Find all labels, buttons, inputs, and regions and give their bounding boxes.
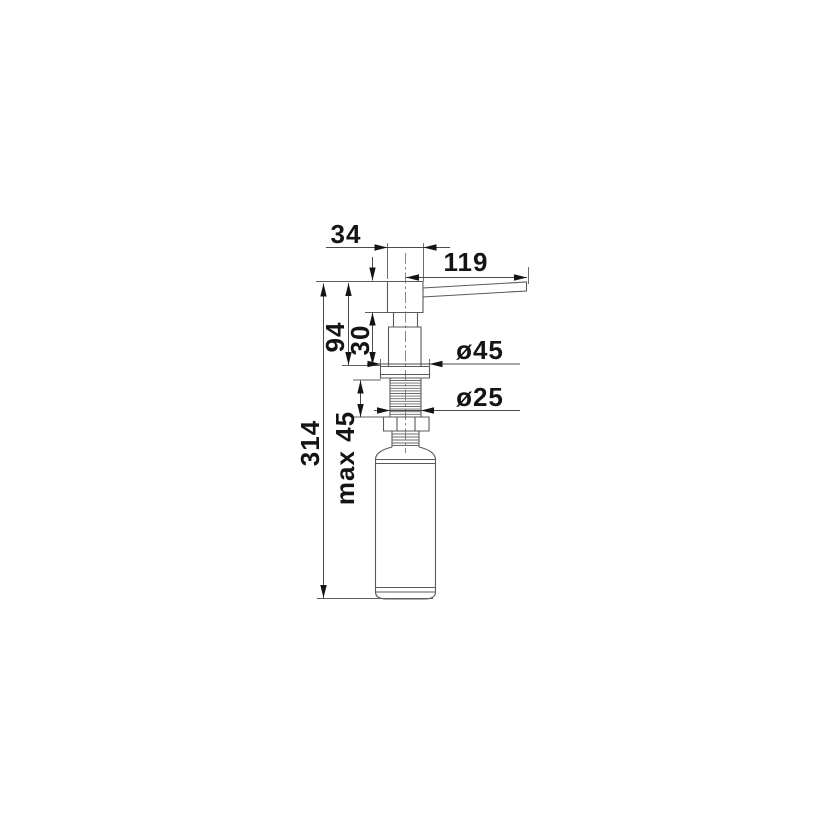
ext-flange-edges	[381, 359, 430, 367]
arrowhead	[375, 244, 388, 250]
spout-lever	[423, 282, 527, 297]
arrowhead	[421, 407, 434, 413]
arrowhead	[357, 381, 363, 394]
arrowhead	[345, 283, 351, 296]
arrowhead	[406, 274, 419, 280]
dimension-label-spout-reach: 119	[444, 247, 489, 277]
pump-head-base	[389, 327, 422, 367]
arrowhead	[369, 313, 375, 326]
dispenser-part-views	[376, 282, 527, 600]
technical-drawing-canvas: 34 119 94 30	[0, 0, 830, 830]
mounting-nut	[384, 417, 430, 431]
arrowhead	[320, 284, 326, 297]
dim-spout-reach: 119	[406, 247, 529, 284]
arrowhead	[369, 268, 375, 281]
dimension-label-flange-diameter: ø45	[456, 335, 504, 365]
arrowhead	[368, 361, 381, 367]
dimension-label-head-width: 34	[331, 219, 362, 249]
arrowhead	[430, 361, 443, 367]
mounting-flange	[381, 367, 430, 379]
arrowhead	[320, 585, 326, 598]
soap-dispenser-drawing: 34 119 94 30	[0, 0, 830, 830]
dimension-label-lower-head-height: 30	[345, 325, 375, 356]
dimension-label-max-counter-thickness: max 45	[330, 411, 360, 505]
dim-head-width: 34	[326, 219, 450, 281]
dimension-label-total-height: 314	[295, 420, 325, 466]
dim-flange-diameter: ø45	[367, 335, 520, 367]
dim-lower-head-height: 30	[345, 257, 388, 366]
arrowhead	[424, 244, 437, 250]
soap-bottle	[376, 447, 436, 599]
dimension-label-shaft-diameter: ø25	[456, 382, 504, 412]
arrowhead	[377, 407, 390, 413]
arrowhead	[514, 274, 527, 280]
